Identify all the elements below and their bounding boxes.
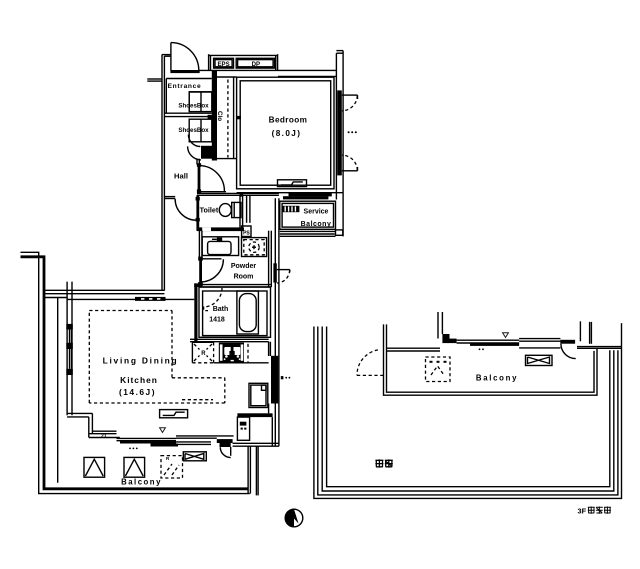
svg-text:(8.0J): (8.0J) <box>272 129 302 138</box>
svg-text:1418: 1418 <box>209 317 225 324</box>
svg-text:R: R <box>201 351 206 357</box>
svg-text:Room: Room <box>234 273 254 280</box>
svg-text:Service: Service <box>304 208 329 215</box>
svg-text:DP: DP <box>252 61 260 68</box>
svg-text:Balcony: Balcony <box>476 374 518 383</box>
svg-text:3F: 3F <box>578 507 587 516</box>
svg-text:ShoesBox: ShoesBox <box>178 127 209 134</box>
svg-text:ShoesBox: ShoesBox <box>178 103 209 110</box>
svg-text:Living Dining: Living Dining <box>103 356 179 366</box>
svg-text:Bedroom: Bedroom <box>269 115 308 124</box>
svg-text:Balcony: Balcony <box>301 221 332 228</box>
svg-text:Bath: Bath <box>213 306 229 313</box>
svg-text:EPS: EPS <box>217 61 229 68</box>
svg-text:Hall: Hall <box>174 172 188 181</box>
svg-text:Powder: Powder <box>231 263 257 270</box>
svg-text:Kitchen: Kitchen <box>120 375 158 385</box>
svg-text:PS: PS <box>243 230 250 236</box>
svg-text:(14.6J): (14.6J) <box>119 387 156 397</box>
svg-text:Entrance: Entrance <box>168 83 202 90</box>
svg-text:Toilet: Toilet <box>200 206 219 215</box>
svg-text:21: 21 <box>101 433 107 439</box>
svg-text:Balcony: Balcony <box>121 477 162 486</box>
svg-text:Clo: Clo <box>216 111 223 121</box>
